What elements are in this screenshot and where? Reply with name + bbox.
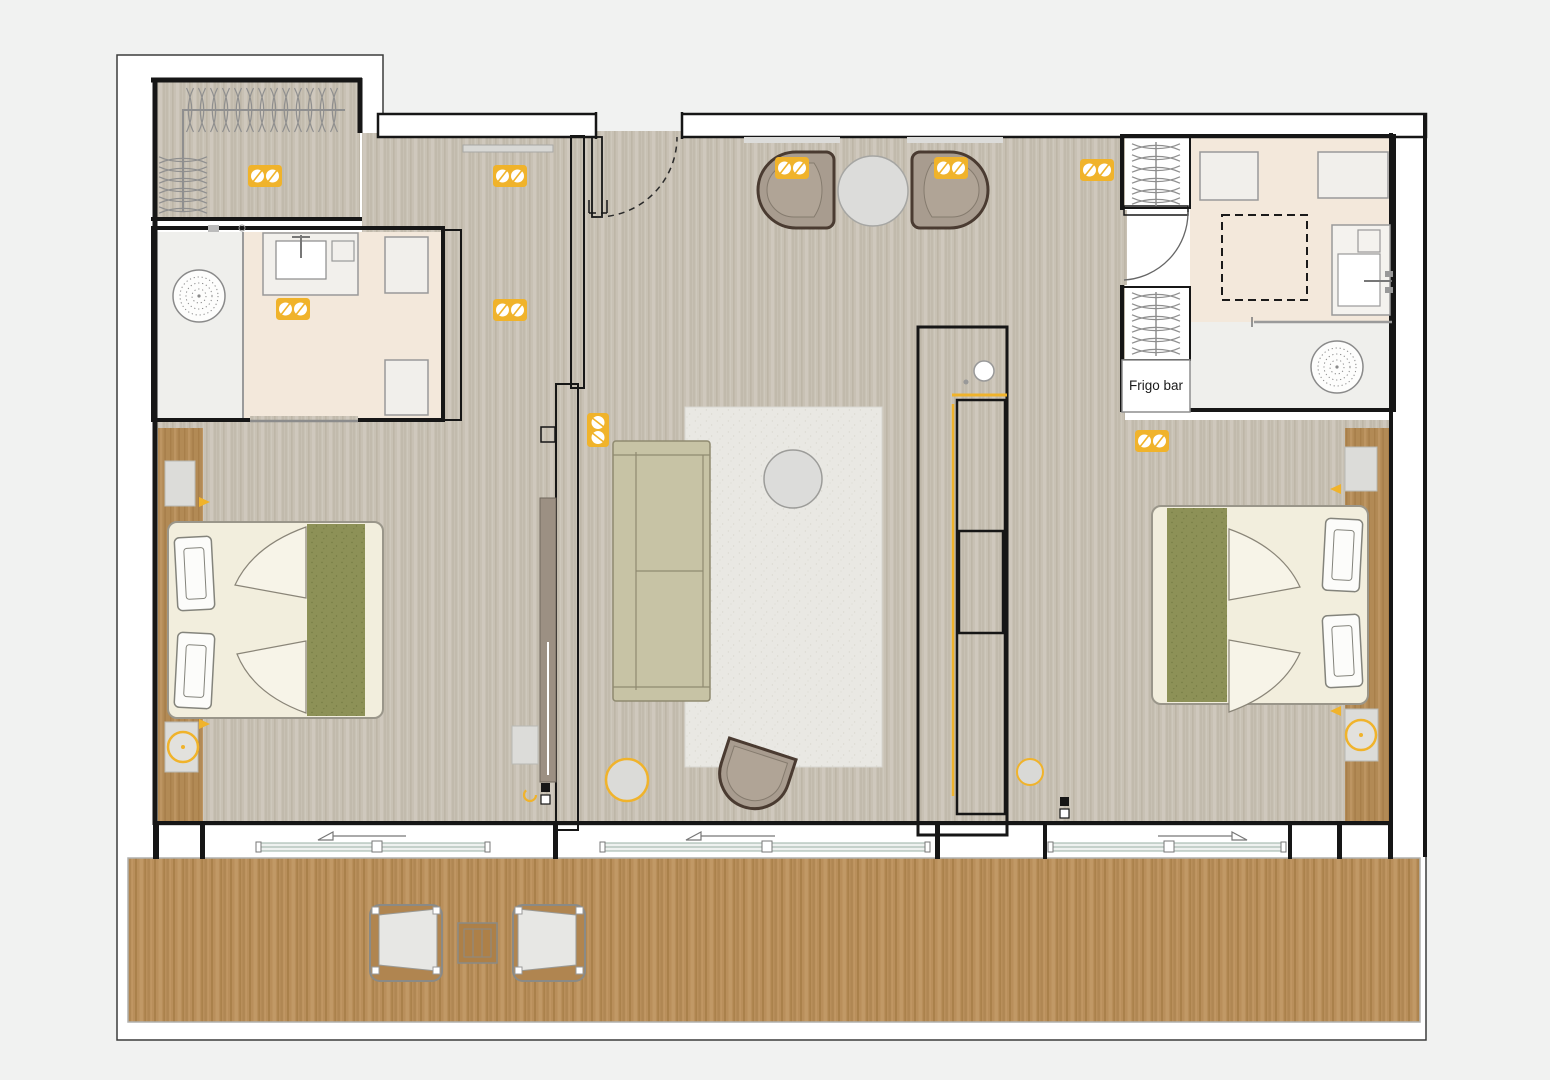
side-table	[1017, 759, 1043, 785]
spotlight-icon	[775, 157, 809, 179]
towel-rail	[208, 225, 219, 232]
shower-head-icon	[173, 270, 225, 322]
floor-plan-canvas: Frigo bar	[0, 0, 1550, 1080]
deck-floor	[128, 858, 1420, 1022]
floor-plan-page: Frigo bar	[0, 0, 1550, 1080]
pillow	[174, 536, 215, 611]
balcony-side-table	[458, 923, 497, 963]
frigo-bar-label: Frigo bar	[1129, 378, 1184, 393]
window-sill	[907, 137, 1003, 143]
bidet	[385, 360, 428, 415]
window-sill	[744, 137, 840, 143]
nightstand	[1345, 447, 1377, 491]
double-bed	[168, 522, 383, 718]
spotlight-icon	[1080, 159, 1114, 181]
double-bed	[1152, 506, 1368, 712]
bathroom-left-shower-floor	[157, 232, 243, 418]
table-lamp-icon	[1346, 720, 1376, 750]
hall-floor	[362, 133, 1125, 423]
nightstand	[165, 461, 195, 506]
lounge-chair-right	[513, 905, 585, 981]
round-table	[838, 156, 908, 226]
wc	[385, 237, 428, 293]
spotlight-icon	[276, 298, 310, 320]
sliding-door-panel	[540, 498, 556, 782]
wc	[1200, 152, 1258, 200]
side-table	[606, 759, 648, 801]
table-lamp-icon	[168, 732, 198, 762]
spotlight-icon	[493, 299, 527, 321]
spotlight-icon	[587, 413, 609, 447]
coffee-table	[764, 450, 822, 508]
vanity	[263, 233, 358, 295]
balcony	[128, 825, 1420, 1022]
shower-head-icon	[1311, 341, 1363, 393]
wall-decor-circle	[974, 361, 994, 381]
top-wall	[378, 114, 1426, 137]
frigo-bar-cabinet: Frigo bar	[1122, 360, 1190, 412]
spotlight-icon	[493, 165, 527, 187]
spotlight-icon	[934, 157, 968, 179]
spotlight-icon	[248, 165, 282, 187]
hall-shelf	[463, 145, 553, 152]
pillow	[1322, 614, 1363, 688]
sofa	[613, 441, 710, 701]
spotlight-icon	[1135, 430, 1169, 452]
lounge-chair-left	[370, 905, 442, 981]
vanity	[1332, 225, 1393, 315]
pillow	[1322, 518, 1363, 592]
pillow	[174, 632, 215, 709]
bidet	[1318, 152, 1388, 198]
wall-console	[512, 726, 538, 764]
